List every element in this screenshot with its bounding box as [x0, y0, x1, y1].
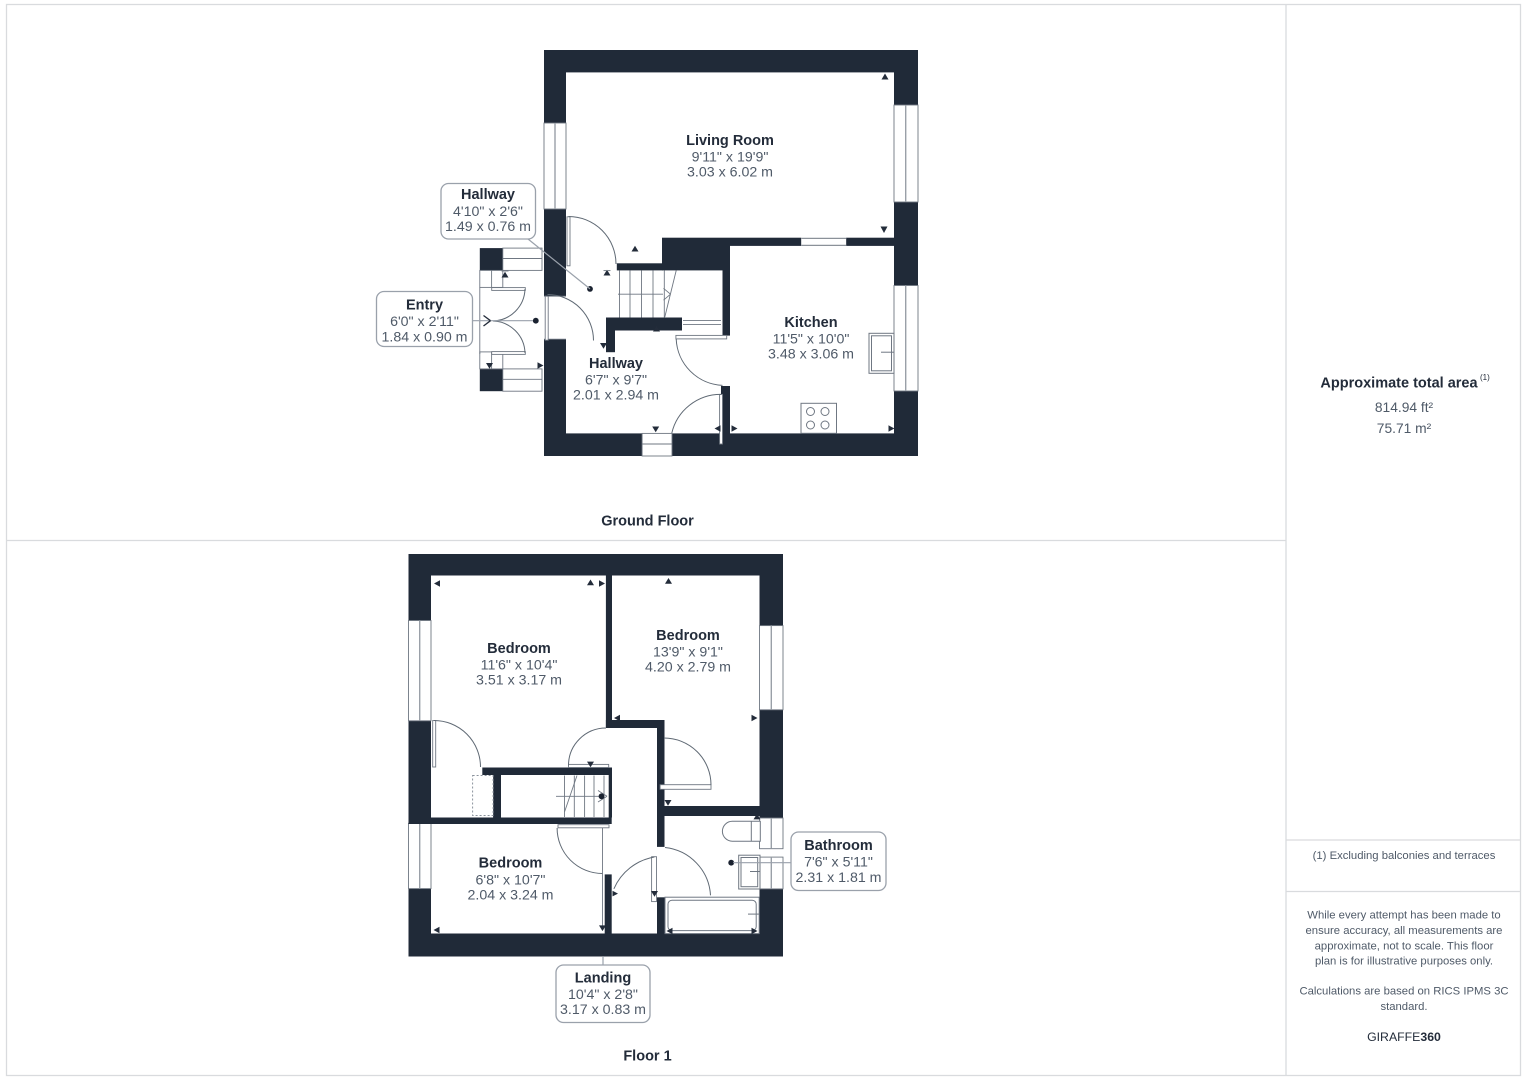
svg-text:Bedroom: Bedroom — [479, 856, 543, 872]
svg-text:Ground Floor: Ground Floor — [601, 514, 694, 530]
svg-text:Calculations are based on RICS: Calculations are based on RICS IPMS 3C — [1299, 986, 1508, 998]
svg-text:plan is for illustrative purpo: plan is for illustrative purposes only. — [1315, 956, 1493, 968]
svg-text:standard.: standard. — [1380, 1001, 1427, 1013]
svg-text:4.20 x 2.79 m: 4.20 x 2.79 m — [645, 660, 731, 676]
svg-text:814.94 ft²: 814.94 ft² — [1375, 400, 1434, 415]
svg-text:6'0" x 2'11": 6'0" x 2'11" — [390, 314, 459, 330]
svg-text:Approximate total area: Approximate total area — [1320, 376, 1478, 392]
svg-text:3.03 x 6.02 m: 3.03 x 6.02 m — [687, 165, 773, 181]
svg-text:3.51 x 3.17 m: 3.51 x 3.17 m — [476, 673, 562, 689]
svg-text:13'9" x 9'1": 13'9" x 9'1" — [653, 645, 723, 661]
svg-text:Bathroom: Bathroom — [804, 838, 872, 854]
svg-text:3.17 x 0.83 m: 3.17 x 0.83 m — [560, 1002, 646, 1018]
svg-text:11'5" x 10'0": 11'5" x 10'0" — [773, 332, 850, 348]
svg-text:3.48 x 3.06 m: 3.48 x 3.06 m — [768, 347, 854, 363]
svg-text:2.31 x 1.81 m: 2.31 x 1.81 m — [796, 870, 882, 886]
svg-text:Hallway: Hallway — [461, 187, 515, 203]
svg-text:Bedroom: Bedroom — [656, 628, 720, 644]
svg-text:7'6" x 5'11": 7'6" x 5'11" — [804, 855, 873, 871]
svg-text:Entry: Entry — [406, 298, 443, 314]
svg-text:Floor 1: Floor 1 — [623, 1049, 671, 1065]
svg-text:While every attempt has been m: While every attempt has been made to — [1307, 910, 1500, 922]
svg-text:2.04 x 3.24 m: 2.04 x 3.24 m — [468, 888, 554, 904]
svg-text:Kitchen: Kitchen — [784, 315, 837, 331]
svg-text:Landing: Landing — [575, 971, 631, 987]
svg-text:6'7" x 9'7": 6'7" x 9'7" — [585, 373, 647, 389]
svg-text:Bedroom: Bedroom — [487, 641, 551, 657]
svg-text:ensure accuracy, all measureme: ensure accuracy, all measurements are — [1306, 925, 1503, 937]
svg-text:Hallway: Hallway — [589, 356, 643, 372]
svg-text:11'6" x 10'4": 11'6" x 10'4" — [481, 658, 558, 674]
svg-text:(1) Excluding balconies and te: (1) Excluding balconies and terraces — [1313, 850, 1496, 862]
svg-text:75.71 m²: 75.71 m² — [1377, 421, 1432, 436]
svg-text:6'8" x 10'7": 6'8" x 10'7" — [476, 873, 546, 889]
svg-text:1.49 x 0.76 m: 1.49 x 0.76 m — [445, 219, 531, 235]
svg-text:1.84 x 0.90 m: 1.84 x 0.90 m — [382, 330, 468, 346]
svg-text:4'10" x 2'6": 4'10" x 2'6" — [453, 204, 523, 220]
svg-text:10'4" x 2'8": 10'4" x 2'8" — [568, 987, 638, 1003]
svg-text:GIRAFFE360: GIRAFFE360 — [1367, 1030, 1441, 1044]
svg-text:approximate, not to scale. Thi: approximate, not to scale. This floor — [1315, 941, 1494, 953]
svg-text:(1): (1) — [1480, 373, 1490, 382]
svg-text:2.01 x 2.94 m: 2.01 x 2.94 m — [573, 388, 659, 404]
svg-text:Living Room: Living Room — [686, 133, 774, 149]
svg-text:9'11" x 19'9": 9'11" x 19'9" — [692, 150, 769, 166]
